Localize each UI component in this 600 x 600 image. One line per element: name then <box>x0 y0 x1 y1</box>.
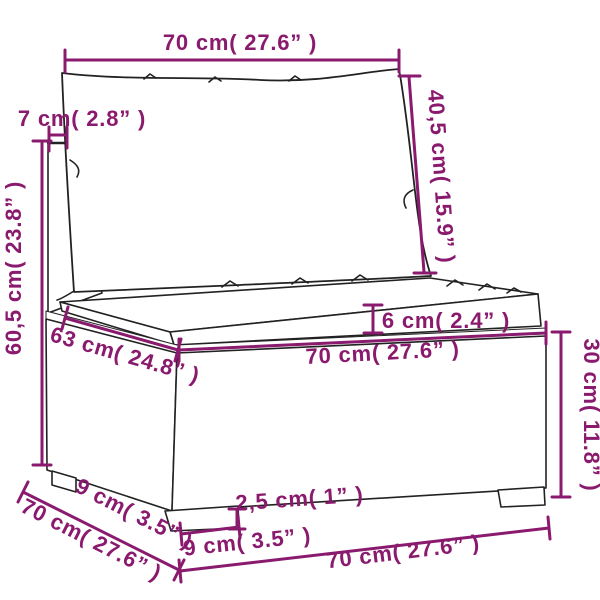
dim-back-total-height: 60,5 cm( 23.8” ) <box>1 141 51 465</box>
dim-back-total-height-label: 60,5 cm( 23.8” ) <box>1 181 26 355</box>
dimension-diagram-svg: 70 cm( 27.6” ) 7 cm( 2.8” ) 60,5 cm( 23.… <box>0 0 600 600</box>
dim-back-panel-thickness-label: 7 cm( 2.8” ) <box>18 106 146 131</box>
dim-seat-cushion-thickness-label: 6 cm( 2.4” ) <box>382 308 510 333</box>
sofa-line-art <box>46 69 546 531</box>
dim-back-cushion-height-label: 40,5 cm( 15.9” ) <box>423 89 460 265</box>
dim-seat-cushion-thickness: 6 cm( 2.4” ) <box>364 305 510 333</box>
dim-base-height-label: 30 cm( 11.8” ) <box>579 338 600 491</box>
back-cushion <box>62 69 431 292</box>
foot-front-right <box>498 487 545 507</box>
dim-base-height: 30 cm( 11.8” ) <box>552 332 600 497</box>
diagram-canvas: 70 cm( 27.6” ) 7 cm( 2.8” ) 60,5 cm( 23.… <box>0 0 600 600</box>
dim-top-width-label: 70 cm( 27.6” ) <box>163 30 317 55</box>
dim-top-width: 70 cm( 27.6” ) <box>65 30 399 72</box>
dim-bottom-front-width-label: 70 cm( 27.6” ) <box>325 530 481 574</box>
dim-foot-height: 2,5 cm( 1” ) <box>229 482 364 529</box>
